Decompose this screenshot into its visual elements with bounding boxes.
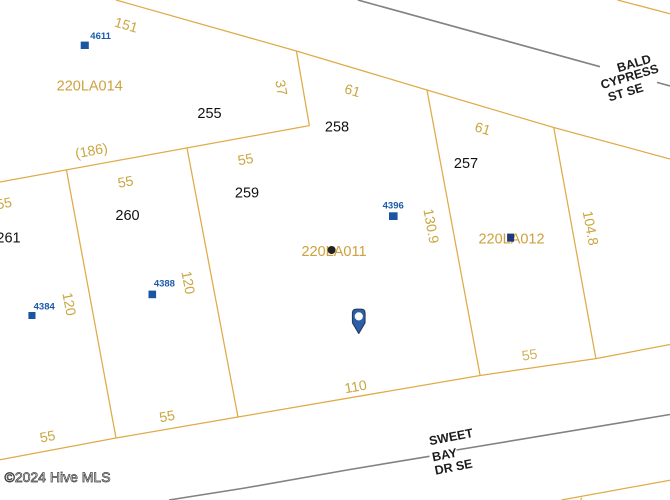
svg-text:260: 260 (115, 208, 139, 224)
svg-text:4388: 4388 (154, 279, 175, 290)
svg-text:55: 55 (116, 172, 134, 191)
svg-text:220LA014: 220LA014 (57, 78, 123, 94)
svg-text:37: 37 (272, 79, 290, 97)
svg-text:55: 55 (38, 427, 56, 446)
svg-text:55: 55 (236, 150, 254, 169)
svg-text:4384: 4384 (34, 302, 56, 313)
svg-text:255: 255 (197, 106, 221, 122)
svg-text:©2024 Hive MLS: ©2024 Hive MLS (5, 469, 111, 485)
svg-text:259: 259 (235, 186, 259, 202)
svg-text:55: 55 (521, 345, 539, 363)
svg-text:257: 257 (454, 156, 478, 172)
svg-text:261: 261 (0, 231, 21, 247)
svg-text:4396: 4396 (383, 200, 404, 211)
svg-text:55: 55 (158, 407, 176, 425)
svg-text:4611: 4611 (90, 31, 111, 42)
svg-text:258: 258 (325, 120, 349, 136)
